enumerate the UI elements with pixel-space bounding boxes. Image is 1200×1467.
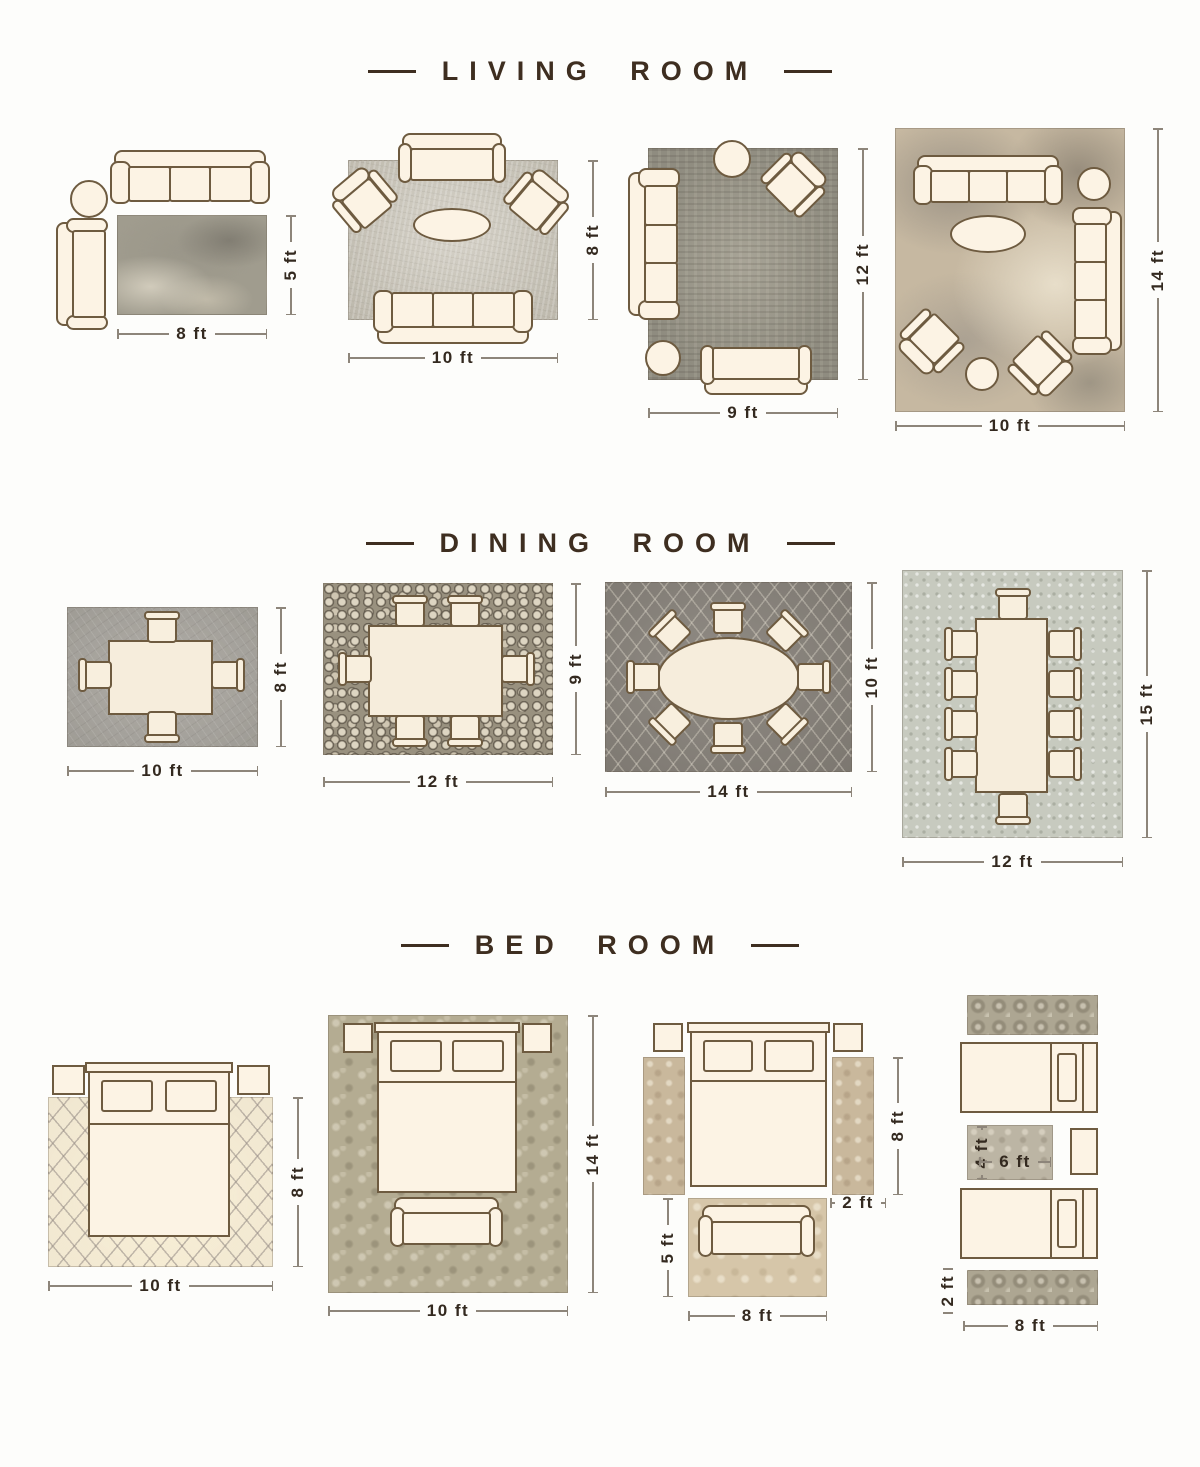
dimension-label: 8 ft bbox=[271, 661, 291, 693]
pillow bbox=[703, 1040, 754, 1072]
dining-chair-icon bbox=[797, 663, 827, 691]
width-dimension: 10 ft bbox=[328, 1300, 568, 1322]
nightstand-icon bbox=[653, 1023, 683, 1052]
dimension-label: 10 ft bbox=[139, 1276, 181, 1296]
height-dimension: 5 ft bbox=[280, 215, 302, 315]
dining-room-layout-1: 10 ft 8 ft bbox=[55, 595, 295, 785]
runner-rug bbox=[643, 1057, 685, 1195]
dining-table-icon bbox=[108, 640, 213, 715]
height-dimension: 8 ft bbox=[582, 160, 604, 320]
headboard bbox=[1082, 1044, 1084, 1111]
round-side-table-icon bbox=[965, 357, 999, 391]
title-dash-right bbox=[751, 944, 799, 947]
bed-room-layout-4: 4 ft 6 ft 2 ft 8 ft bbox=[935, 985, 1190, 1335]
height-dimension: 10 ft bbox=[861, 582, 883, 772]
dimension-label: 8 ft bbox=[176, 324, 208, 344]
runner-rug bbox=[967, 1270, 1098, 1305]
loveseat-icon bbox=[56, 218, 108, 330]
dining-table-icon bbox=[368, 625, 503, 717]
dining-chair-icon bbox=[211, 661, 241, 689]
living-room-layout-2: 10 ft 8 ft bbox=[330, 120, 620, 370]
dimension-label: 5 ft bbox=[281, 249, 301, 281]
dining-chair-icon bbox=[82, 661, 112, 689]
headboard bbox=[687, 1022, 830, 1033]
round-side-table-icon bbox=[1077, 167, 1111, 201]
dining-chair-icon bbox=[948, 750, 978, 778]
bench-icon bbox=[698, 1205, 815, 1257]
twin-bed-icon bbox=[960, 1042, 1098, 1113]
sofa-icon bbox=[913, 155, 1063, 205]
width-dimension: 9 ft bbox=[648, 402, 838, 424]
dimension-label: 12 ft bbox=[853, 243, 873, 285]
height-dimension: 8 ft bbox=[270, 607, 292, 747]
round-side-table-icon bbox=[645, 340, 681, 376]
pillow bbox=[1057, 1199, 1077, 1247]
dining-chair-icon bbox=[147, 615, 177, 643]
living-room-layout-4: 10 ft 14 ft bbox=[885, 115, 1175, 450]
dimension-label: 12 ft bbox=[417, 772, 459, 792]
dining-room-layout-3: 14 ft 10 ft bbox=[595, 575, 885, 795]
area-rug bbox=[117, 215, 267, 315]
blanket-edge bbox=[691, 1080, 826, 1082]
width-dimension: 12 ft bbox=[902, 851, 1123, 873]
dimension-label: 2 ft bbox=[938, 1275, 958, 1307]
round-side-table-icon bbox=[713, 140, 751, 178]
dining-room-layout-2: 12 ft 9 ft bbox=[315, 575, 580, 790]
sofa-icon bbox=[628, 168, 680, 320]
pillow bbox=[764, 1040, 815, 1072]
dimension-label: 10 ft bbox=[862, 656, 882, 698]
width-dimension: 10 ft bbox=[348, 347, 558, 369]
dimension-label: 5 ft bbox=[658, 1232, 678, 1264]
dining-chair-icon bbox=[147, 711, 177, 739]
nightstand-icon bbox=[522, 1023, 552, 1053]
dimension-label: 10 ft bbox=[432, 348, 474, 368]
runner-rug bbox=[967, 995, 1098, 1035]
pillow bbox=[390, 1040, 442, 1072]
blanket-edge bbox=[1050, 1044, 1052, 1111]
title-dash-right bbox=[784, 70, 832, 73]
dining-chair-icon bbox=[713, 606, 743, 634]
dimension-label: 10 ft bbox=[427, 1301, 469, 1321]
height-dimension: 14 ft bbox=[1147, 128, 1169, 412]
dimension-label: 8 ft bbox=[888, 1110, 908, 1142]
runner-length-dimension: 8 ft bbox=[963, 1315, 1098, 1337]
title-dash-left bbox=[366, 542, 414, 545]
section-title-living-room: LIVING ROOM bbox=[0, 56, 1200, 87]
bed-room-layout-2: 14 ft 10 ft bbox=[320, 1000, 605, 1325]
rug-size-guide: LIVING ROOM 8 ft 5 ft bbox=[0, 0, 1200, 1467]
runner-width-dimension: 2 ft bbox=[830, 1192, 886, 1214]
dining-chair-icon bbox=[501, 655, 531, 683]
dining-chair-icon bbox=[948, 710, 978, 738]
round-side-table-icon bbox=[70, 180, 108, 218]
width-dimension: 8 ft bbox=[117, 323, 267, 345]
dimension-label: 8 ft bbox=[1015, 1316, 1047, 1336]
dimension-label: 6 ft bbox=[999, 1152, 1031, 1172]
nightstand-icon bbox=[833, 1023, 863, 1052]
twin-bed-icon bbox=[960, 1188, 1098, 1259]
dining-table-icon bbox=[975, 618, 1048, 793]
bedside-rug-width-dimension: 6 ft bbox=[979, 1151, 1051, 1173]
bed-icon bbox=[88, 1063, 230, 1237]
section-title-dining-room: DINING ROOM bbox=[0, 528, 1200, 559]
dining-chair-icon bbox=[1048, 750, 1078, 778]
section-title-text: DINING ROOM bbox=[440, 528, 761, 559]
dining-chair-icon bbox=[998, 592, 1028, 620]
pillow bbox=[165, 1080, 217, 1112]
foot-rug-width-dimension: 8 ft bbox=[688, 1305, 827, 1327]
bed-icon bbox=[690, 1023, 827, 1187]
dimension-label: 14 ft bbox=[583, 1133, 603, 1175]
dining-chair-icon bbox=[998, 793, 1028, 821]
width-dimension: 14 ft bbox=[605, 781, 852, 803]
dining-chair-icon bbox=[395, 715, 425, 743]
title-dash-left bbox=[401, 944, 449, 947]
title-dash-left bbox=[368, 70, 416, 73]
oval-coffee-table-icon bbox=[413, 208, 491, 242]
bed-icon bbox=[377, 1023, 517, 1193]
blanket-edge bbox=[378, 1081, 516, 1083]
nightstand-icon bbox=[237, 1065, 270, 1095]
sofa-icon bbox=[1072, 207, 1122, 355]
height-dimension: 14 ft bbox=[582, 1015, 604, 1293]
dimension-label: 2 ft bbox=[842, 1193, 874, 1213]
sofa-icon bbox=[373, 290, 533, 344]
width-dimension: 10 ft bbox=[895, 415, 1125, 437]
dining-chair-icon bbox=[1048, 630, 1078, 658]
height-dimension: 12 ft bbox=[852, 148, 874, 380]
headboard bbox=[1082, 1190, 1084, 1257]
dining-chair-icon bbox=[450, 599, 480, 627]
dimension-label: 12 ft bbox=[991, 852, 1033, 872]
dimension-label: 8 ft bbox=[288, 1166, 308, 1198]
dining-chair-icon bbox=[948, 630, 978, 658]
pillow bbox=[101, 1080, 153, 1112]
dining-chair-icon bbox=[948, 670, 978, 698]
runner-width-dimension: 2 ft bbox=[937, 1268, 959, 1308]
dimension-label: 9 ft bbox=[566, 653, 586, 685]
bench-icon bbox=[390, 1197, 503, 1247]
sofa-cushions bbox=[128, 166, 253, 202]
dimension-label: 14 ft bbox=[707, 782, 749, 802]
nightstand-icon bbox=[343, 1023, 373, 1053]
foot-rug-height-dimension: 5 ft bbox=[657, 1198, 679, 1297]
dimension-label: 10 ft bbox=[141, 761, 183, 781]
height-dimension: 9 ft bbox=[565, 583, 587, 755]
oval-coffee-table-icon bbox=[950, 215, 1026, 253]
dining-chair-icon bbox=[395, 599, 425, 627]
dimension-label: 8 ft bbox=[742, 1306, 774, 1326]
dimension-label: 9 ft bbox=[727, 403, 759, 423]
nightstand-icon bbox=[52, 1065, 85, 1095]
runner-rug bbox=[832, 1057, 874, 1195]
section-title-bed-room: BED ROOM bbox=[0, 930, 1200, 961]
dining-room-layout-4: 12 ft 15 ft bbox=[890, 565, 1160, 870]
pillow bbox=[452, 1040, 504, 1072]
section-title-text: LIVING ROOM bbox=[442, 56, 759, 87]
sofa-icon bbox=[110, 150, 270, 204]
section-title-text: BED ROOM bbox=[475, 930, 726, 961]
dining-chair-icon bbox=[342, 655, 372, 683]
height-dimension: 15 ft bbox=[1136, 570, 1158, 838]
blanket-edge bbox=[1050, 1190, 1052, 1257]
dining-chair-icon bbox=[630, 663, 660, 691]
dimension-label: 8 ft bbox=[583, 224, 603, 256]
pillow bbox=[1057, 1053, 1077, 1101]
nightstand-icon bbox=[1070, 1128, 1098, 1175]
dining-chair-icon bbox=[1048, 670, 1078, 698]
width-dimension: 12 ft bbox=[323, 771, 553, 793]
bed-room-layout-1: 8 ft 10 ft bbox=[40, 1055, 310, 1295]
bed-room-layout-3: 8 ft 2 ft 5 ft 8 ft bbox=[640, 1010, 900, 1325]
dining-chair-icon bbox=[713, 722, 743, 750]
height-dimension: 8 ft bbox=[287, 1097, 309, 1267]
width-dimension: 10 ft bbox=[67, 760, 258, 782]
dining-chair-icon bbox=[450, 715, 480, 743]
dimension-label: 15 ft bbox=[1137, 683, 1157, 725]
loveseat-icon bbox=[700, 345, 812, 395]
width-dimension: 10 ft bbox=[48, 1275, 273, 1297]
living-room-layout-3: 9 ft 12 ft bbox=[620, 130, 880, 430]
title-dash-right bbox=[787, 542, 835, 545]
runner-length-dimension: 8 ft bbox=[887, 1057, 909, 1195]
dining-chair-icon bbox=[1048, 710, 1078, 738]
dimension-label: 14 ft bbox=[1148, 249, 1168, 291]
loveseat-icon bbox=[398, 133, 506, 183]
sofa-cushions bbox=[72, 230, 106, 317]
headboard bbox=[85, 1062, 233, 1073]
living-room-layout-1: 8 ft 5 ft bbox=[45, 125, 300, 355]
dimension-label: 10 ft bbox=[989, 416, 1031, 436]
blanket-edge bbox=[89, 1123, 229, 1125]
headboard bbox=[374, 1022, 520, 1033]
